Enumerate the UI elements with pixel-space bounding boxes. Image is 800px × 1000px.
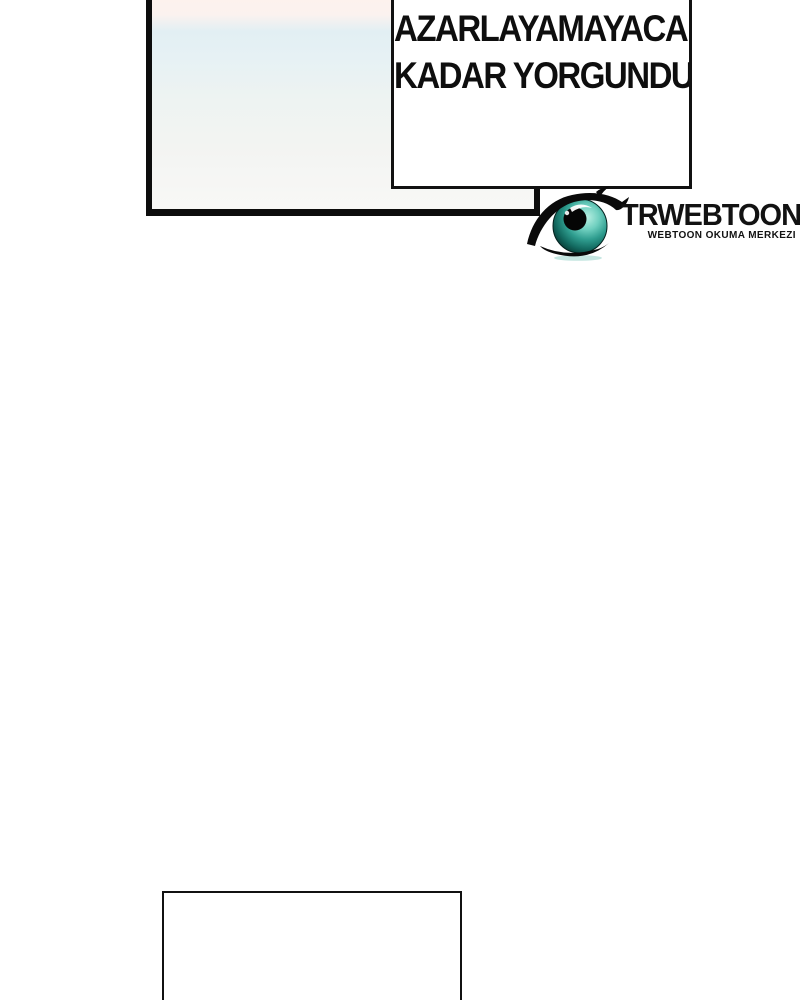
- watermark-logo: [526, 186, 630, 262]
- speech-line-1: AZARLAYAMAYACAK: [394, 5, 689, 52]
- webtoon-page: AZARLAYAMAYACAK KADAR YORGUNDUM,: [0, 0, 800, 1000]
- speech-line-2: KADAR YORGUNDUM,: [394, 52, 689, 99]
- watermark-brand: TRWEBTOON: [621, 199, 800, 234]
- speech-bubble: AZARLAYAMAYACAK KADAR YORGUNDUM,: [391, 0, 692, 189]
- comic-panel-bottom: [162, 891, 462, 1000]
- eye-icon: [526, 186, 630, 262]
- speech-text: AZARLAYAMAYACAK KADAR YORGUNDUM,: [394, 5, 689, 99]
- watermark-tagline: WEBTOON OKUMA MERKEZI: [618, 230, 796, 241]
